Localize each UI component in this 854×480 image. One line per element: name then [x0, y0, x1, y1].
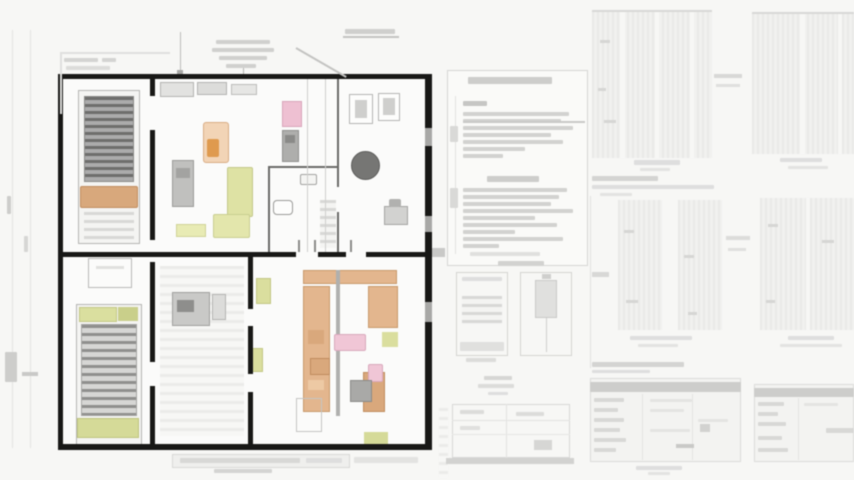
elevation-e-dash-2	[822, 240, 834, 243]
dim-text-left-1	[7, 196, 11, 214]
mid-box-bar-2	[516, 412, 544, 416]
table1-col-2	[692, 394, 693, 460]
elevation-b-caption-1	[780, 158, 822, 162]
table2-row-2a	[758, 412, 778, 416]
elevation-c-dash-1	[624, 230, 634, 233]
stair-lower-green-pad-a	[79, 307, 117, 322]
caption-cd-2	[638, 344, 678, 347]
kitchen-island-right-upper	[368, 286, 398, 328]
elevation-b-topline	[752, 12, 854, 14]
detail1-label	[466, 358, 496, 362]
wc-sink	[300, 174, 317, 185]
mid-note-2	[478, 384, 514, 388]
dim-text-tl-3	[66, 66, 110, 70]
mid-box-gray	[534, 440, 552, 450]
elevation-a-caption-2	[640, 168, 670, 171]
mid-box-bar-1	[460, 410, 484, 414]
table2-row-1b	[804, 403, 838, 406]
elevation-b-caption-2	[788, 166, 828, 169]
detail1-stripes	[462, 296, 502, 324]
sofa-green	[227, 167, 253, 217]
dim-between-ab-2	[716, 84, 740, 87]
window-mark-2	[425, 216, 432, 232]
notes-m9	[463, 244, 499, 248]
notes-m8	[463, 237, 563, 241]
faded-left-arrow	[592, 272, 609, 277]
mid-box-h2	[452, 434, 570, 435]
table-under-stair	[88, 258, 132, 288]
notes-m1	[463, 188, 567, 192]
detail2-marker	[542, 274, 551, 279]
notes-panel-vline	[455, 96, 456, 254]
table2-col	[798, 398, 799, 460]
elevation-a-caption-1	[634, 160, 680, 165]
table1-check-mark	[700, 424, 710, 432]
green-pad-4	[364, 432, 388, 444]
bottom-dim-bar-2	[306, 458, 342, 463]
table-outline	[296, 398, 322, 432]
wall-frame-2-art	[383, 98, 395, 115]
door-leaf-1	[298, 240, 300, 252]
cabinet-bm-1-inner	[177, 300, 194, 312]
elevation-a-gap-1	[620, 12, 625, 158]
mid-header-1	[592, 176, 658, 181]
duct-line-right	[325, 79, 326, 252]
elevation-a-dash-2	[598, 88, 606, 91]
wall-vert-b2	[248, 326, 253, 374]
mid-box-h1	[452, 420, 570, 421]
table1-dark-dash	[676, 444, 694, 448]
table1-row-1b	[650, 399, 692, 402]
notes-m5	[463, 216, 535, 220]
mid-header-3	[600, 193, 632, 196]
wall-vert-a2	[150, 130, 155, 240]
wardrobe-inner	[176, 168, 190, 178]
desk-chair	[389, 199, 401, 207]
bottom-dim-label	[214, 469, 272, 473]
notes-m6	[463, 223, 557, 227]
elevation-a-dash-3	[604, 120, 616, 123]
table1-row-5a	[594, 438, 626, 442]
cabinet-gray-inner	[285, 135, 295, 143]
notes-l6	[463, 147, 525, 151]
table1-title-1	[592, 362, 684, 367]
table2-row-4a	[758, 436, 782, 440]
notes-h2	[487, 176, 539, 182]
mid-note-3	[488, 392, 508, 395]
table1-row-6a	[594, 448, 616, 452]
stool-tan	[310, 358, 330, 375]
duct-line-left	[307, 79, 308, 252]
wall-outer-top	[58, 74, 431, 79]
caption-cd-1	[630, 336, 692, 340]
mid-header-2	[592, 185, 714, 189]
elevation-e-dash-1	[768, 224, 778, 227]
caption-e-1	[788, 336, 834, 340]
dim-text-left-3	[5, 352, 17, 382]
dim-line-top-h	[60, 52, 170, 54]
dim-text-tl-1	[64, 58, 98, 62]
door-leaf-2	[314, 240, 316, 252]
notes-l4	[463, 133, 551, 137]
elevation-d-dash-1	[684, 255, 694, 258]
shelf-strip-yellow	[176, 224, 206, 237]
table2-row-5a	[758, 448, 788, 452]
notes-panel-title	[468, 77, 552, 84]
table2-row-1a	[758, 402, 784, 406]
dim-arrow-left	[22, 372, 38, 376]
green-pad-1	[256, 278, 271, 304]
attic-ladder	[320, 200, 336, 248]
door-leaf-3	[350, 240, 352, 252]
faded-left-vline	[590, 196, 591, 368]
round-table	[351, 151, 380, 180]
table1-row-1a	[594, 398, 624, 402]
note2-text	[345, 29, 395, 34]
wall-outer-bottom	[58, 444, 431, 450]
notes-caption-1	[498, 261, 544, 266]
wall-mid-a	[58, 252, 296, 257]
leader-note-line-2	[212, 48, 274, 52]
mid-bottom-bar	[446, 458, 574, 464]
wall-vert-a3	[150, 262, 155, 362]
table2-row-3a	[758, 422, 786, 426]
elevation-a-topline	[592, 10, 712, 12]
notes-tail	[470, 252, 540, 256]
dim-between-ab-1	[714, 74, 742, 78]
desk	[384, 206, 408, 225]
mid-note-1	[484, 376, 512, 380]
island-left-inset-2	[308, 380, 324, 390]
table1-title-2	[592, 370, 650, 373]
stair-upper-bench-tan	[80, 186, 138, 208]
dim-line-top-v	[60, 52, 62, 114]
elevation-a	[592, 12, 712, 158]
dim-text-left-2	[24, 236, 28, 252]
notes-m7	[463, 230, 515, 234]
appliance-gray	[350, 380, 372, 402]
kitchen-island-top	[303, 270, 397, 284]
elevation-a-gap-3	[690, 12, 694, 158]
wall-thin-c1	[337, 79, 339, 187]
leader-note-pointer	[243, 68, 244, 74]
table1-row-3a	[594, 418, 624, 422]
table2-row-3b	[826, 428, 854, 433]
elevation-b-gap-2	[838, 14, 842, 154]
wall-thin-c2	[337, 212, 339, 252]
notes-m3	[463, 202, 551, 206]
leader-note-line-4	[226, 64, 256, 68]
table1-foot-1	[636, 466, 682, 470]
wall-bath-v	[268, 168, 270, 252]
window-mark-1	[425, 128, 432, 146]
screenshot-viewport	[0, 0, 854, 480]
plan-right-mark	[432, 248, 445, 257]
wall-mid-c	[366, 252, 431, 257]
stair-lower-green-pad-b	[118, 307, 138, 321]
wall-vert-a1	[150, 74, 155, 96]
edge-hatch-strip	[439, 408, 448, 478]
table1-row-2a	[594, 408, 618, 412]
table1-foot-2	[648, 472, 670, 475]
leader-vertical	[180, 32, 181, 72]
table1-row-3b	[698, 419, 728, 422]
mid-box-bar-3	[460, 426, 480, 430]
drawing-sheet	[0, 0, 854, 480]
table2-header	[754, 388, 854, 397]
caption-e-2	[780, 344, 842, 347]
detail1-base	[460, 342, 504, 351]
detail2-vline	[546, 318, 547, 352]
notes-h1	[463, 101, 487, 106]
chair-pink-1	[334, 334, 366, 351]
bottom-dim-bar-3	[354, 457, 418, 463]
stair-lower-green-pad-c	[77, 418, 139, 438]
notes-m4	[463, 209, 573, 213]
armchair-cushion	[207, 139, 219, 157]
elevation-c-dash-2	[626, 300, 638, 303]
stair-upper-lower-treads	[84, 212, 134, 242]
living-counter-2	[197, 82, 227, 95]
dim-between-de-1	[726, 236, 750, 240]
wall-vert-b1	[248, 257, 253, 309]
bottom-dim-bar-1	[180, 458, 300, 463]
elevation-a-gap-2	[655, 12, 659, 158]
dim-line-left-2	[30, 30, 31, 448]
table1-row-2b	[650, 409, 684, 412]
cabinet-bm-2	[212, 294, 226, 320]
table1-row-4a	[594, 428, 620, 432]
elevation-e-gap	[806, 198, 810, 330]
wall-outer-left	[58, 74, 63, 450]
notes-panel-blob-2	[450, 188, 458, 208]
table1-header	[590, 382, 741, 392]
table-under-stair-line	[96, 266, 124, 269]
island-left-inset-1	[308, 330, 324, 344]
elevation-e-dash-3	[766, 300, 775, 303]
notes-m2	[463, 195, 559, 199]
kitchen-island-left	[303, 286, 330, 412]
notes-arrow-line	[463, 121, 585, 123]
mid-box-vdiv	[506, 404, 507, 458]
wall-mid-b	[318, 252, 346, 257]
living-counter-3	[231, 84, 257, 95]
stair-upper-flight	[84, 96, 134, 182]
detail1-top	[462, 277, 502, 281]
notes-l1	[463, 112, 569, 116]
elevation-d	[678, 200, 722, 330]
wall-vert-a4	[150, 386, 155, 444]
notes-l7	[463, 154, 503, 158]
green-pad-3	[382, 332, 398, 347]
table1-col-1	[642, 394, 643, 460]
wall-bath-h	[268, 166, 339, 168]
stair-lower-flight	[81, 324, 137, 416]
notes-panel-blob-1	[450, 126, 458, 142]
elevation-a-dash-1	[600, 40, 610, 43]
notes-l5	[463, 140, 563, 144]
notes-l3	[463, 126, 573, 130]
elevation-b-gap-1	[800, 14, 805, 154]
living-counter-1	[160, 82, 194, 97]
dim-line-left-1	[12, 30, 13, 448]
elevation-c	[618, 200, 662, 330]
dim-text-tl-2	[102, 58, 116, 62]
leader-note-line-1	[216, 40, 270, 44]
shelf-pink	[282, 101, 302, 127]
leader-note-line-3	[219, 56, 267, 60]
wall-vert-b3	[248, 392, 253, 444]
leader-arrowhead	[177, 70, 183, 74]
dim-between-de-2	[728, 248, 746, 251]
sofa-green-seat	[213, 214, 250, 238]
wc-toilet	[273, 200, 293, 215]
elevation-d-dash-2	[688, 312, 697, 315]
note2-underline	[343, 36, 399, 38]
detail2-object	[535, 280, 557, 318]
table1-row-4b	[650, 429, 690, 432]
window-mark-3	[425, 302, 432, 322]
wall-frame-1-art	[355, 100, 367, 118]
